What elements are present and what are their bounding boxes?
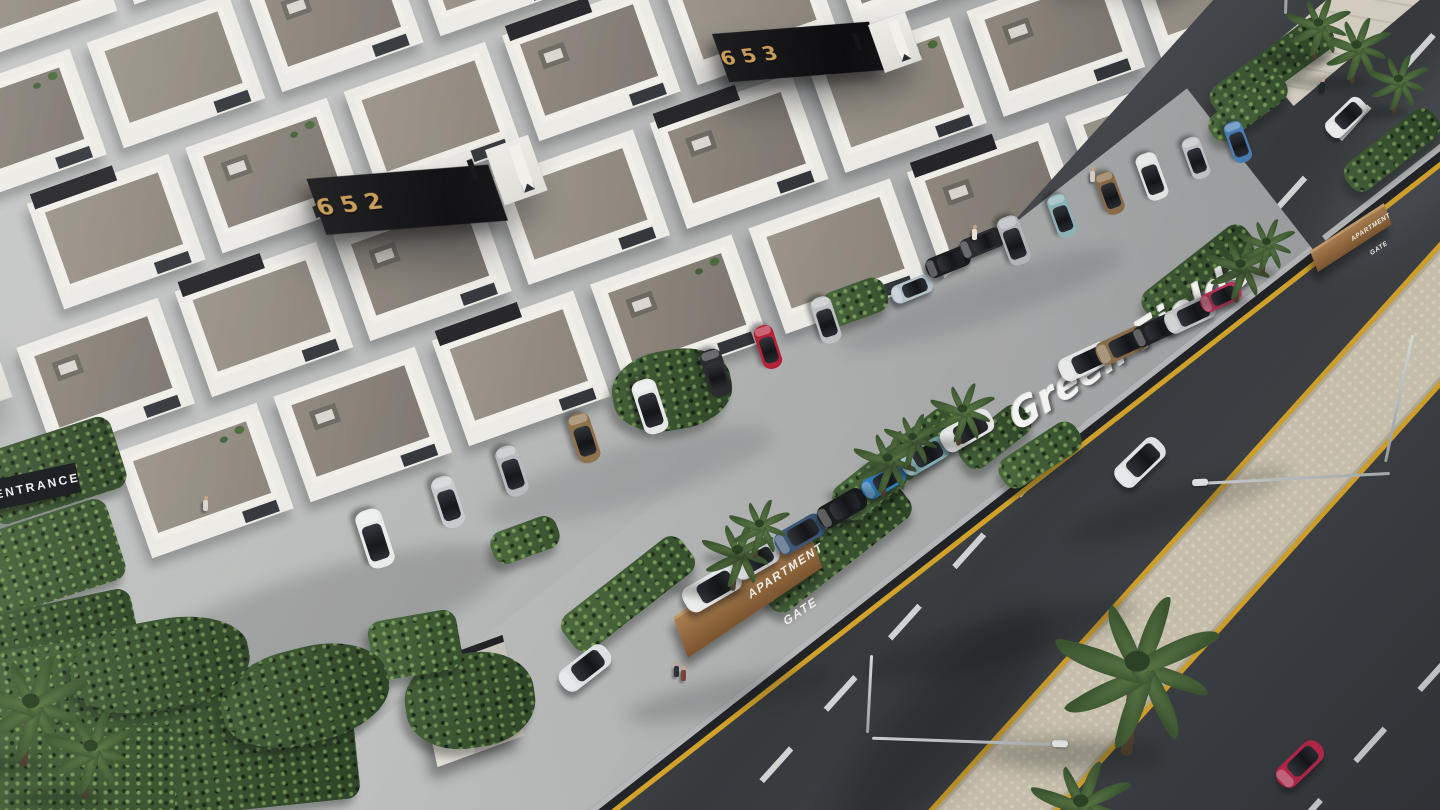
pedestrian bbox=[203, 500, 208, 511]
aerial-render-scene: 652653654 ENTRANCE APARTMENT GATE APARTM… bbox=[0, 0, 1440, 810]
pedestrian bbox=[681, 670, 686, 681]
pedestrian bbox=[1090, 171, 1095, 182]
pedestrian bbox=[1320, 82, 1325, 93]
pedestrians bbox=[0, 0, 1440, 810]
pedestrian bbox=[674, 666, 679, 677]
pedestrian bbox=[972, 229, 977, 240]
